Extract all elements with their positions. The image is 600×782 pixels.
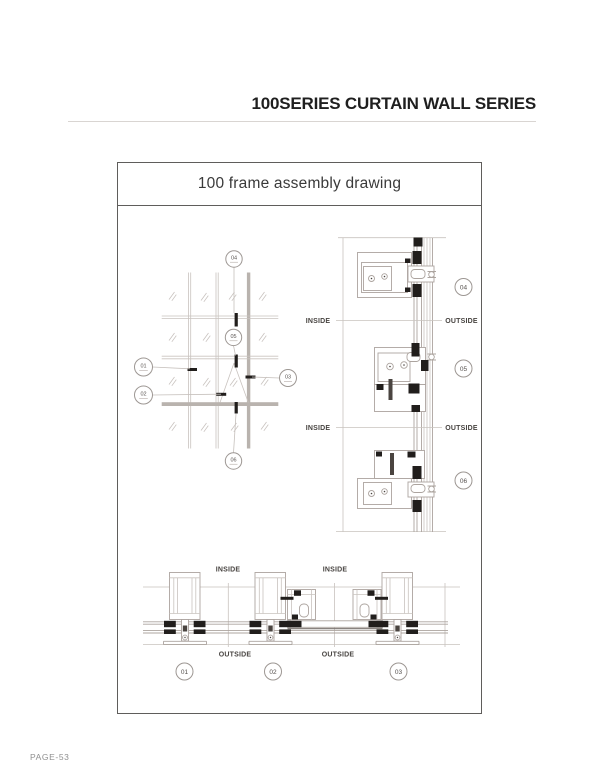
drawing-title: 100 frame assembly drawing [118,163,481,206]
mullion-profile-03 [376,573,419,645]
vertical-section: INSIDE OUTSIDE INSIDE OUTSIDE [306,238,478,533]
callout-label: 01 [140,364,146,370]
callout-label: 05 [460,366,468,373]
vent-triangle [220,363,248,403]
mullion-profile-01 [164,573,207,645]
callout-label: 04 [231,256,237,262]
callout-03: 03 [390,663,407,680]
callout-bubble-01: 01 [135,358,153,376]
outside-label: OUTSIDE [322,652,355,659]
inside-label: INSIDE [306,318,331,325]
callout-bubble-05: 05 [225,329,241,345]
inside-label: INSIDE [306,425,331,432]
callout-label: 06 [230,458,236,464]
callout-label: 06 [460,478,468,485]
callout-bubble-04: 04 [226,251,242,267]
callout-02: 02 [265,663,282,680]
vent-glazing-band [288,621,383,629]
mullion-profile-02 [249,573,292,645]
outside-label: OUTSIDE [219,652,252,659]
callout-04: 04 [455,279,472,296]
header-rule [68,121,536,122]
callout-label: 05 [230,334,236,340]
callout-label: 02 [269,669,277,676]
callout-label: 03 [285,375,291,381]
outside-label: OUTSIDE [445,318,478,325]
assembly-drawing: 04 05 06 01 [118,206,481,713]
callout-bubble-06: 06 [225,453,241,469]
callout-label: 02 [140,392,146,398]
outside-label: OUTSIDE [445,425,478,432]
callout-06: 06 [455,472,472,489]
callout-bubble-02: 02 [135,386,153,404]
glass-hatch-marks [169,292,268,432]
horizontal-section: INSIDE INSIDE OUTSIDE OUTSIDE 01 02 03 [143,567,460,681]
page-number: PAGE-53 [30,752,69,762]
document-page: 100SERIES CURTAIN WALL SERIES 100 frame … [0,0,600,782]
callout-05: 05 [455,360,472,377]
heavy-transom [162,402,279,406]
elevation-view: 04 05 06 01 [135,251,297,469]
heavy-mullion [247,273,250,449]
inside-label: INSIDE [323,567,348,574]
callout-label: 01 [181,669,189,676]
callout-01: 01 [176,663,193,680]
callout-label: 04 [460,284,468,291]
page-title: 100SERIES CURTAIN WALL SERIES [251,94,536,114]
drawing-box: 100 frame assembly drawing [117,162,482,714]
inside-label: INSIDE [216,567,241,574]
callout-bubble-03: 03 [280,370,297,387]
callout-label: 03 [395,669,403,676]
